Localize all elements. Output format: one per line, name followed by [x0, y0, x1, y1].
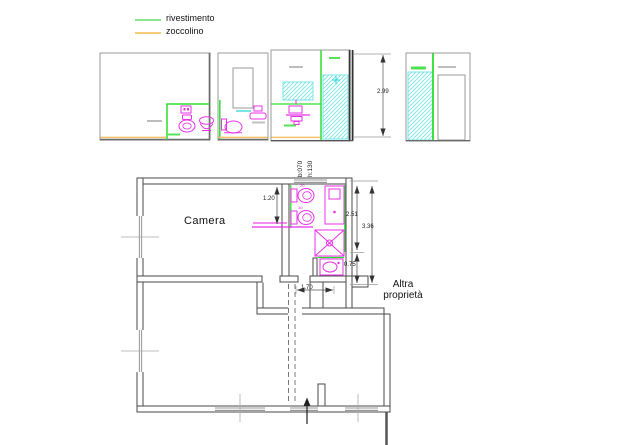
washbasin-plan — [320, 259, 343, 275]
cad-drawing-page: rivestimento zoccolino Camera Altra prop… — [0, 0, 630, 445]
tiny-note-text — [147, 120, 162, 122]
door-opening — [438, 75, 465, 140]
floor-plan — [121, 178, 390, 445]
floor-plan-drawing — [0, 0, 630, 445]
window-note-height: h:130 — [307, 147, 314, 177]
bidet-plan — [291, 211, 314, 225]
elevation-3 — [271, 50, 354, 141]
windows-and-openings — [121, 179, 378, 422]
elevation-height-dimension — [353, 54, 391, 137]
legend-label-zoccolino: zoccolino — [166, 27, 204, 36]
tiny-note-text — [236, 110, 251, 112]
zoccolino-swatch — [135, 32, 161, 34]
rivestimento-swatch — [135, 19, 161, 21]
shower-plan — [315, 230, 344, 256]
elevation-4 — [406, 53, 470, 141]
tile-hatch-area — [283, 82, 313, 100]
elevation-1 — [100, 53, 214, 140]
tiny-note-text — [168, 134, 180, 136]
legend-label-rivestimento: rivestimento — [166, 14, 215, 23]
tile-hatch-area — [408, 72, 433, 140]
dim-bath-upper: 2.51 — [346, 212, 358, 218]
dim-camera-niche: 1.20 — [263, 196, 275, 202]
dim-corridor: 1.70 — [301, 285, 313, 291]
tiny-note-text — [253, 222, 287, 224]
demolished-wall-dashed — [289, 284, 296, 402]
room-label-altra-proprieta: Altra proprietà — [368, 279, 438, 301]
dim-niche: 0.75 — [344, 262, 356, 268]
fixture-code-wc: 20 — [300, 184, 304, 188]
dim-bath-total: 3.36 — [362, 224, 374, 230]
elevation-2 — [218, 53, 268, 140]
room-label-camera: Camera — [184, 215, 226, 227]
tiny-note-text — [252, 122, 265, 124]
tiny-note-text — [329, 57, 340, 59]
window-size-note: b:070 h:130 — [297, 147, 314, 177]
washing-column-plan — [325, 186, 344, 224]
fixture-code-bidet: 30 — [298, 206, 302, 210]
door-opening — [233, 68, 253, 108]
toilet-plan — [291, 189, 314, 203]
dim-elevation-height: 2.99 — [377, 89, 389, 95]
tiny-note-text — [289, 66, 303, 68]
tiny-note-text — [438, 66, 456, 68]
tiny-note-text — [284, 125, 296, 127]
tile-hatch-area — [323, 75, 348, 139]
window-note-width: b:070 — [297, 147, 304, 177]
tiny-note-text — [411, 67, 426, 70]
